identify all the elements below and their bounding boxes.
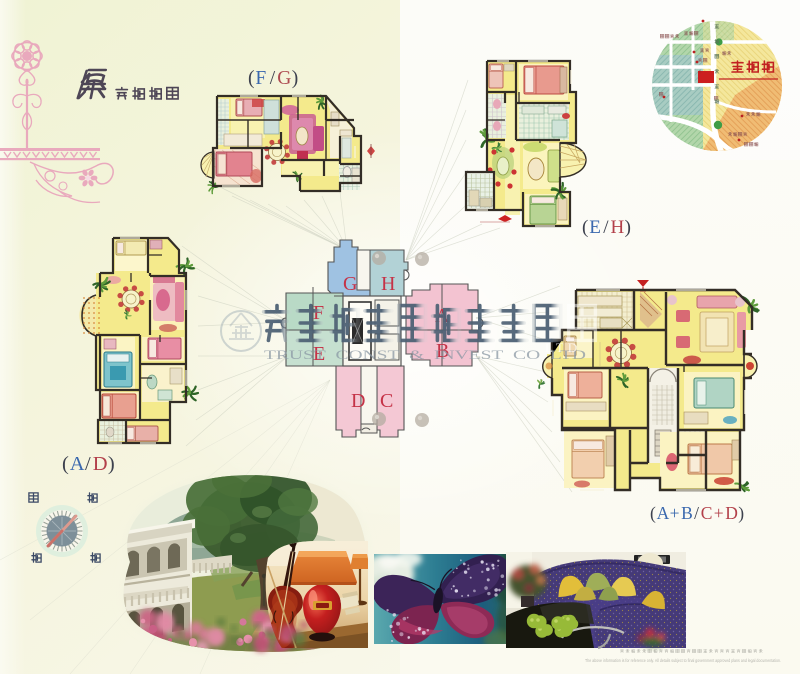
svg-text:F: F [313, 302, 324, 324]
svg-text:D: D [93, 453, 108, 475]
svg-text:+: + [714, 503, 724, 523]
svg-text:G: G [277, 68, 291, 89]
svg-text:(: ( [62, 453, 69, 475]
svg-text:+: + [670, 503, 680, 523]
svg-text:E: E [589, 217, 601, 238]
svg-text:H: H [611, 217, 625, 238]
svg-text:(: ( [248, 68, 255, 89]
svg-text:C: C [701, 503, 713, 523]
svg-text:): ) [738, 503, 744, 523]
svg-text:): ) [625, 217, 631, 238]
svg-text:): ) [292, 68, 299, 89]
svg-text:D: D [725, 503, 738, 523]
svg-text:TRUST CONST & INVEST CO L: TRUST CONST & INVEST CO LTD [264, 347, 586, 362]
svg-text:(: ( [582, 217, 588, 238]
svg-text:/: / [603, 217, 609, 238]
svg-text:LTD: LTD [545, 340, 581, 355]
svg-text:A: A [657, 503, 670, 523]
svg-text:/: / [694, 503, 699, 523]
svg-text:A: A [70, 453, 85, 475]
svg-text:B: B [681, 503, 693, 523]
svg-text:The above information is for r: The above information is for reference o… [585, 658, 781, 663]
svg-text:F: F [255, 68, 266, 89]
svg-text:): ) [108, 453, 115, 475]
svg-text:(: ( [650, 503, 656, 523]
svg-text:G: G [343, 273, 357, 295]
svg-text:D: D [351, 390, 365, 412]
svg-text:H: H [381, 273, 395, 295]
svg-text:C: C [380, 390, 393, 412]
svg-text:/: / [85, 453, 91, 475]
svg-text:/: / [270, 68, 276, 89]
